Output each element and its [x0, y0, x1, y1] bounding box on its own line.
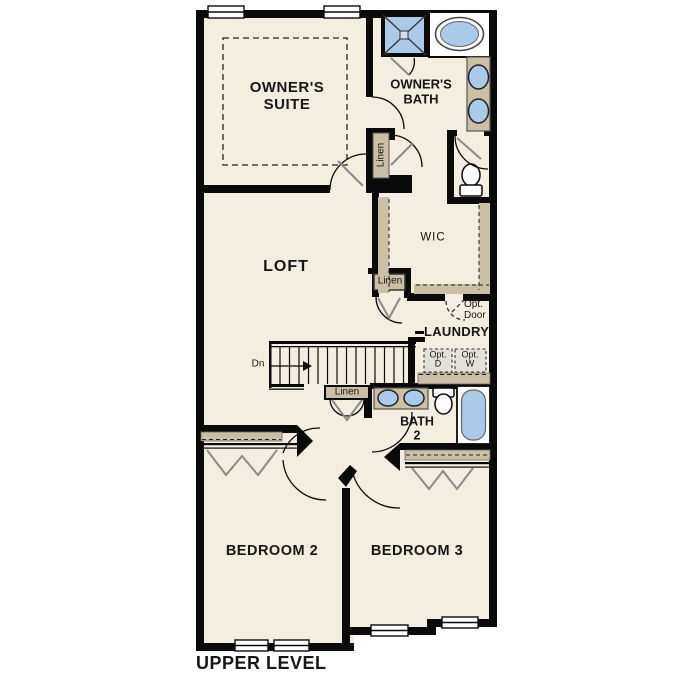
level-title: UPPER LEVEL — [196, 653, 327, 673]
window — [371, 625, 408, 636]
window — [235, 640, 268, 651]
window — [442, 617, 478, 628]
laundry-label: LAUNDRY — [424, 325, 489, 340]
double-sink-vanity-icon — [467, 57, 490, 131]
bath2-toilet-icon — [433, 388, 454, 414]
optional-washer-label: Opt. W — [461, 351, 478, 370]
optional-door-label: Opt. Door — [464, 299, 486, 321]
window — [274, 640, 309, 651]
bath2-label: BATH 2 — [400, 415, 434, 443]
shower-icon — [383, 15, 426, 55]
bathtub-icon — [429, 12, 490, 57]
stairs-down-label: Dn — [252, 358, 265, 369]
floor-plan: OWNER'S SUITE OWNER'S BATH Linen WIC Lin… — [0, 0, 687, 687]
linen-stairs-label: Linen — [335, 386, 359, 397]
linen-upper-label: Linen — [375, 143, 386, 167]
linen-mid-label: Linen — [378, 275, 402, 286]
wic-label: WIC — [420, 232, 445, 245]
bedroom3-label: BEDROOM 3 — [371, 543, 463, 559]
bath2-double-sink-vanity-icon — [374, 388, 428, 409]
bath2-bathtub-icon — [457, 386, 490, 444]
optional-dryer-label: Opt. D — [429, 351, 446, 370]
laundry-counter — [418, 373, 490, 384]
toilet-icon — [460, 164, 482, 196]
loft-label: LOFT — [263, 258, 309, 276]
floor-plan-drawing — [0, 0, 687, 687]
window — [208, 6, 244, 18]
owners-suite-label: OWNER'S SUITE — [250, 80, 325, 114]
bedroom2-label: BEDROOM 2 — [226, 543, 318, 559]
owners-bath-label: OWNER'S BATH — [390, 77, 452, 106]
window — [324, 6, 360, 18]
